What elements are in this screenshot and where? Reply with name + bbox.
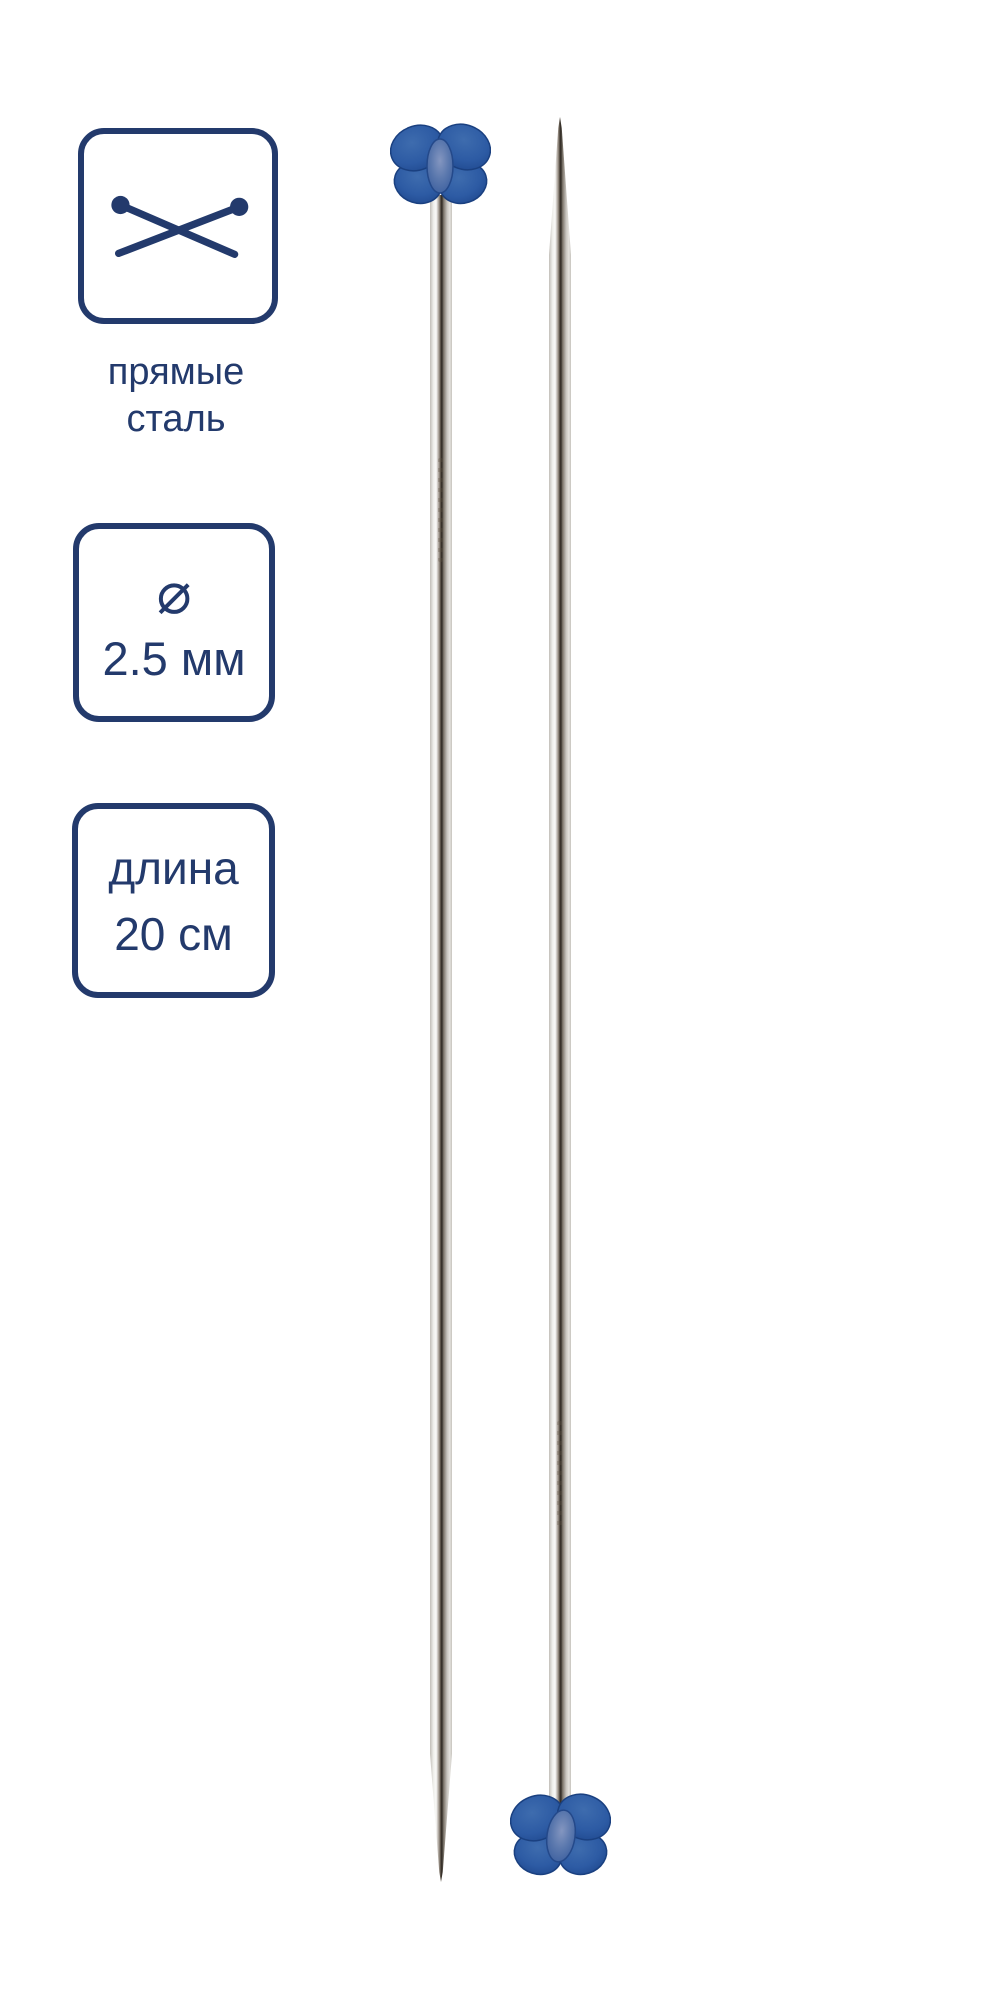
length-badge: длина 20 см (72, 803, 275, 998)
right-needle-shaft (549, 117, 571, 1840)
length-value: 20 см (114, 901, 233, 967)
crossed-needles-icon (90, 142, 266, 310)
needle-type-caption: прямые сталь (56, 349, 296, 443)
needle-type-badge (78, 128, 278, 324)
butterfly-stopper-bottom-icon (510, 1788, 611, 1883)
type-caption-line1: прямые (56, 349, 296, 396)
left-needle-engraving (438, 458, 443, 562)
type-caption-line2: сталь (56, 396, 296, 443)
length-label: длина (108, 835, 238, 901)
left-needle-shaft (430, 195, 452, 1882)
diameter-symbol-icon: ⌀ (157, 562, 192, 624)
product-photo-canvas: прямые сталь ⌀ 2.5 мм длина 20 см (0, 0, 1000, 2000)
butterfly-stopper-top-icon (390, 119, 491, 214)
diameter-badge: ⌀ 2.5 мм (73, 523, 275, 722)
diameter-value: 2.5 мм (102, 634, 245, 684)
right-needle-engraving (557, 1421, 562, 1529)
